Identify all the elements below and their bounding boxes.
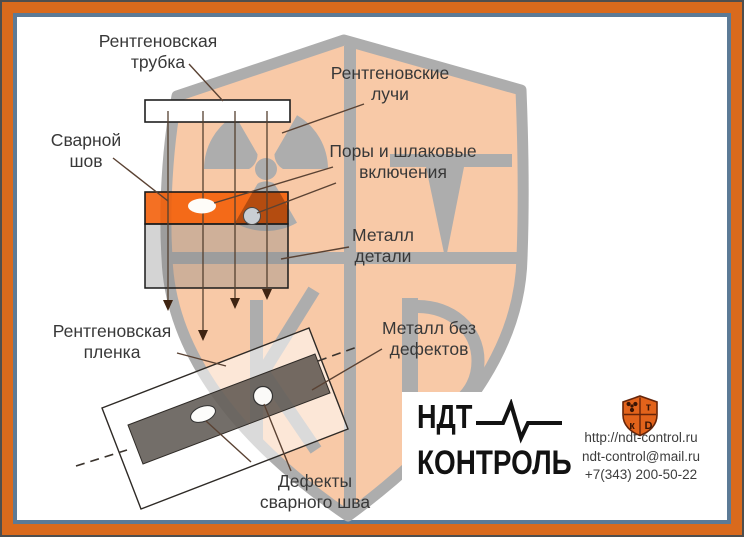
label-line: детали — [352, 246, 414, 267]
label-line: сварного шва — [260, 492, 370, 513]
shield-glyph-t: т — [646, 402, 652, 414]
website-url: http://ndt-control.ru — [582, 429, 700, 448]
pulse-line-icon — [474, 399, 566, 445]
label-line: шов — [51, 151, 121, 172]
label-line: Дефекты — [260, 471, 370, 492]
infographic-root: Рентгеновская трубка Рентгеновские лучи … — [0, 0, 744, 537]
label-line: Рентгеновская — [53, 321, 172, 342]
label-pores-inclusions: Поры и шлаковые включения — [329, 141, 476, 183]
label-line: лучи — [331, 84, 449, 105]
phone-number: +7(343) 200-50-22 — [582, 466, 700, 485]
label-line: Металл без — [382, 318, 476, 339]
label-metal-no-defects: Металл без дефектов — [382, 318, 476, 360]
label-weld-seam: Сварной шов — [51, 130, 121, 172]
label-line: дефектов — [382, 339, 476, 360]
email-address: ndt-control@mail.ru — [582, 448, 700, 467]
label-line: Рентгеновские — [331, 63, 449, 84]
label-xray-rays: Рентгеновские лучи — [331, 63, 449, 105]
label-metal-part: Металл детали — [352, 225, 414, 267]
logo-kontrol-text: КОНТРОЛЬ — [417, 446, 572, 480]
xray-tube-shape — [145, 100, 290, 122]
pointer-weld-seam — [113, 158, 168, 201]
label-line: трубка — [99, 52, 218, 73]
film-slag-spot — [254, 387, 273, 406]
label-line: Сварной — [51, 130, 121, 151]
label-line: пленка — [53, 342, 172, 363]
logo-ndt-text: НДТ — [417, 400, 472, 433]
label-line: Рентгеновская — [99, 31, 218, 52]
label-film: Рентгеновская пленка — [53, 321, 172, 363]
label-weld-defects: Дефекты сварного шва — [260, 471, 370, 513]
slag-inclusion-defect — [244, 208, 261, 225]
label-line: включения — [329, 162, 476, 183]
label-line: Поры и шлаковые — [329, 141, 476, 162]
logo-contact-info: http://ndt-control.ru ndt-control@mail.r… — [582, 429, 700, 485]
label-xray-tube: Рентгеновская трубка — [99, 31, 218, 73]
label-line: Металл — [352, 225, 414, 246]
pore-defect — [188, 199, 216, 214]
